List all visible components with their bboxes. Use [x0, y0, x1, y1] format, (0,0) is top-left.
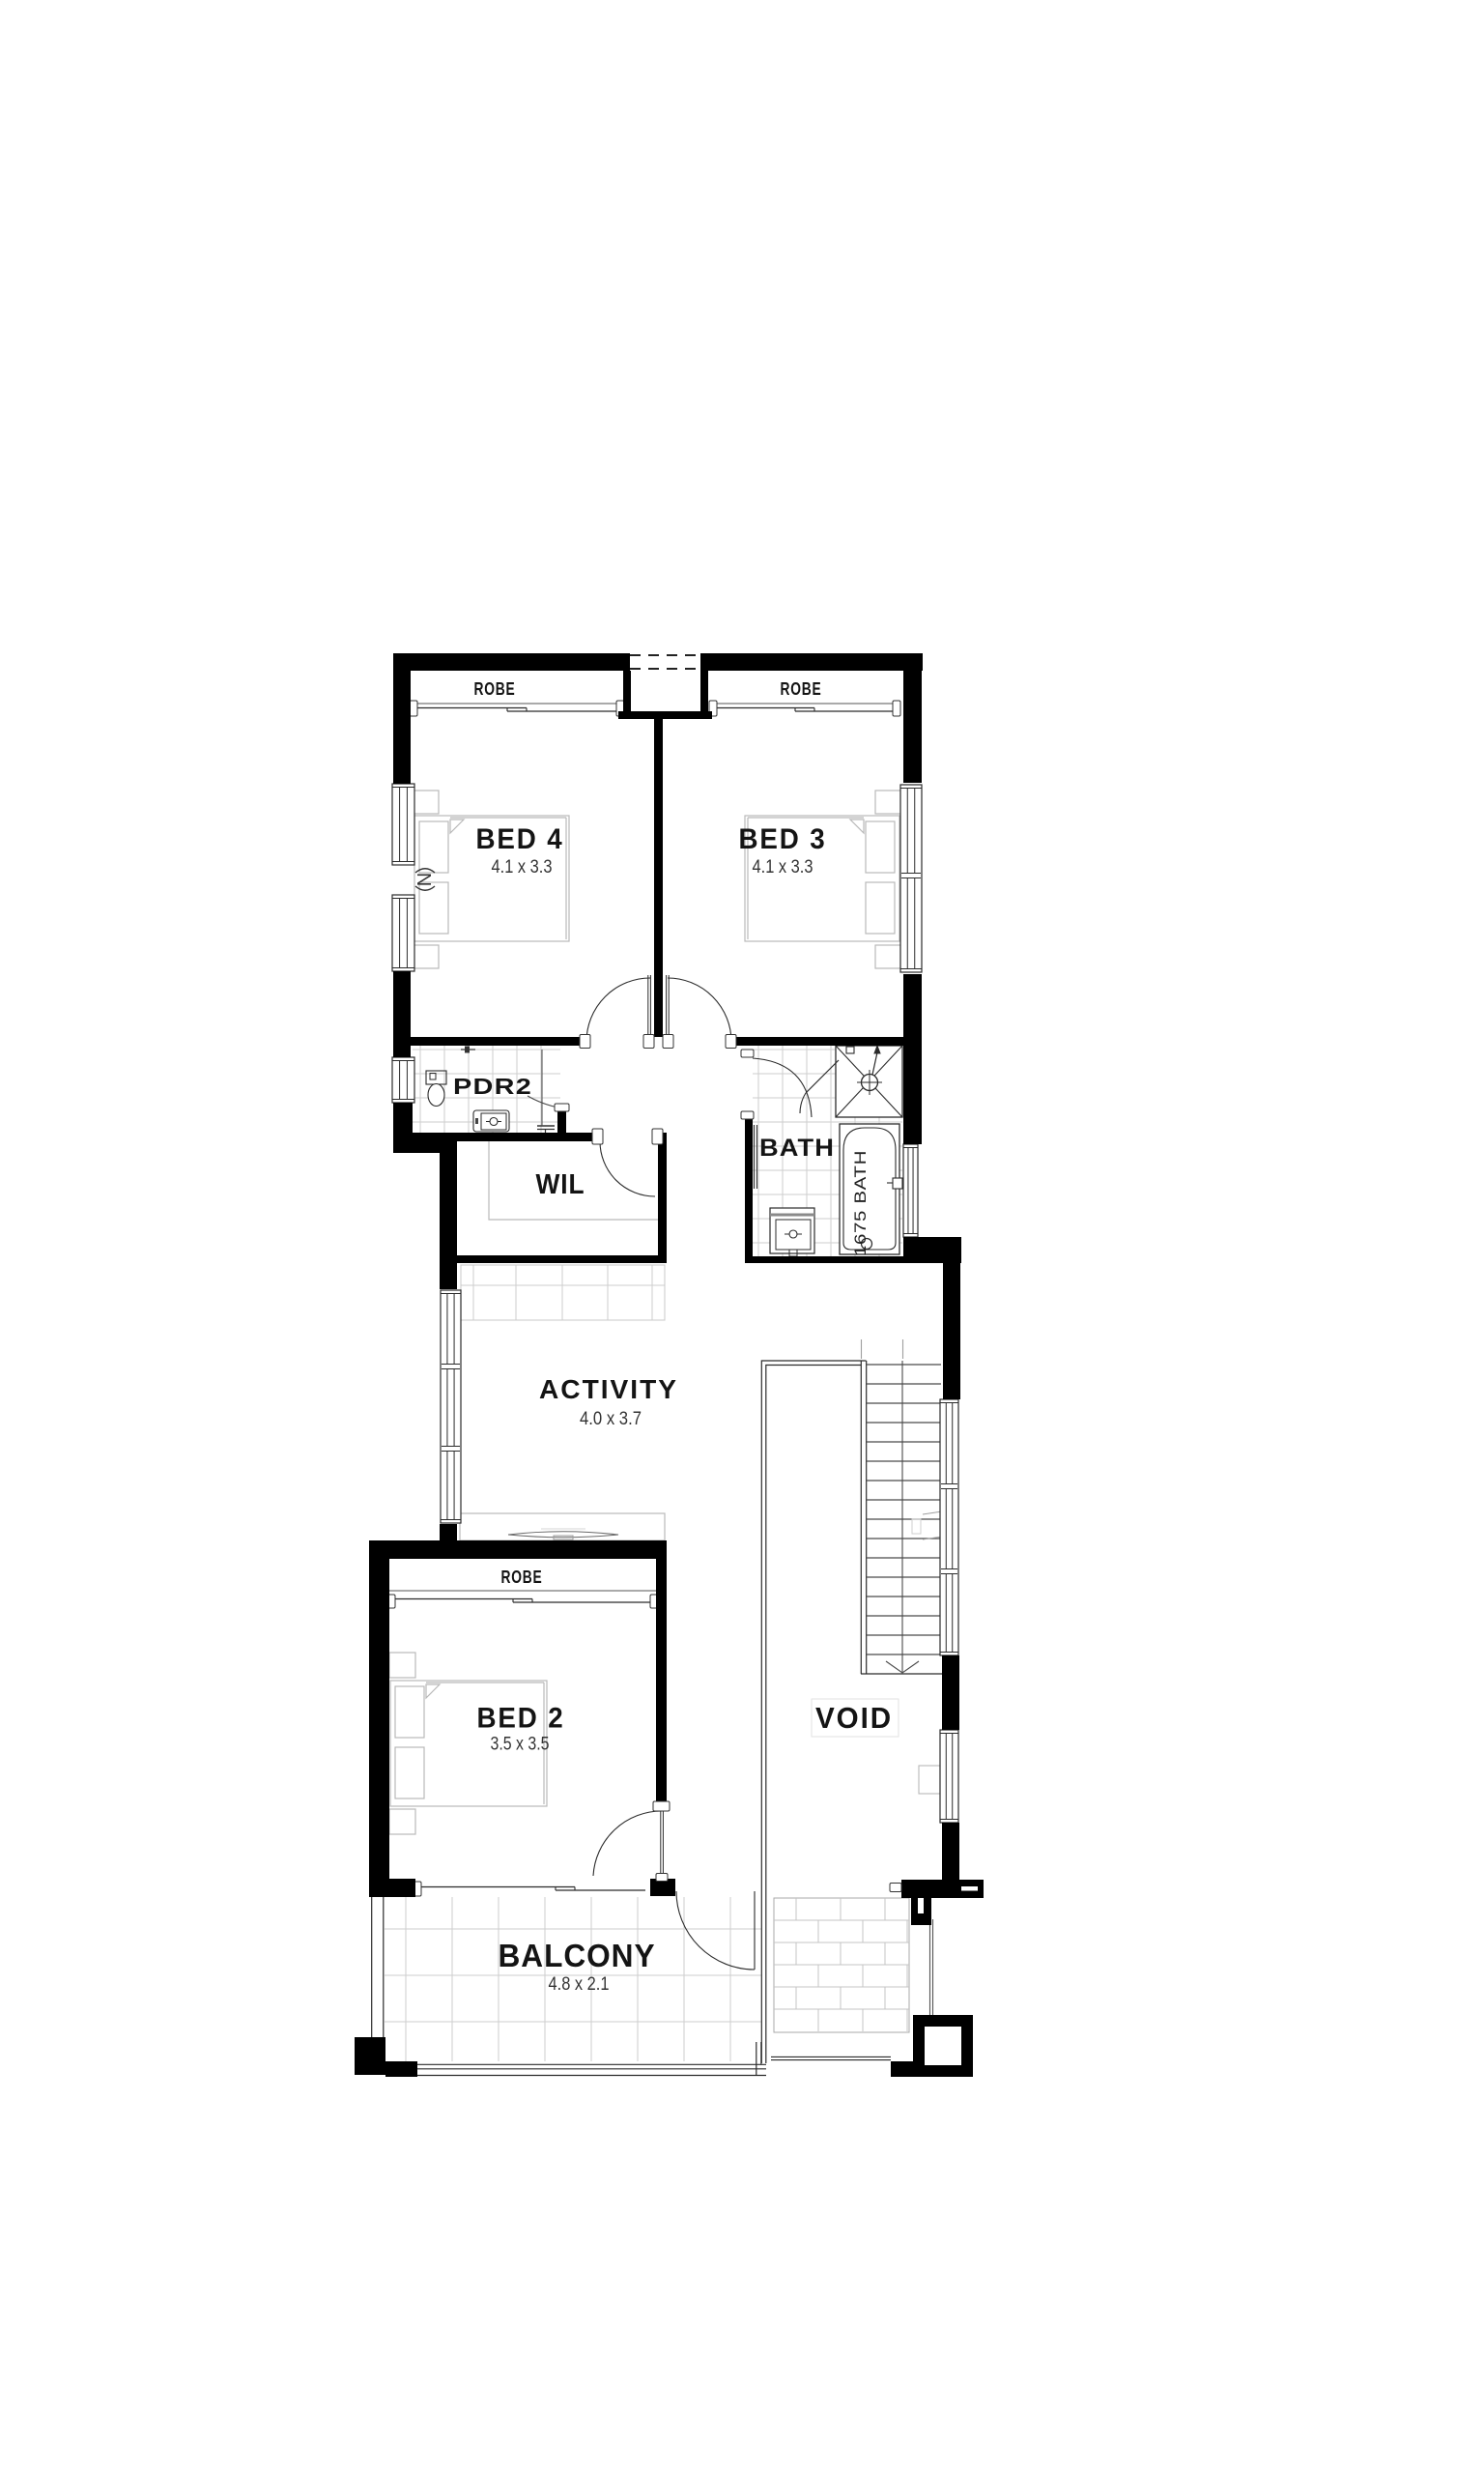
svg-text:N: N	[414, 873, 436, 886]
svg-text:4.1 x 3.3: 4.1 x 3.3	[492, 857, 553, 877]
svg-text:ROBE: ROBE	[781, 679, 822, 699]
svg-text:BED 3: BED 3	[739, 823, 827, 855]
svg-text:4.1 x 3.3: 4.1 x 3.3	[753, 857, 813, 877]
svg-text:WIL: WIL	[536, 1169, 585, 1200]
svg-text:BED 4: BED 4	[476, 823, 564, 855]
svg-text:ACTIVITY: ACTIVITY	[539, 1374, 678, 1404]
svg-text:ROBE: ROBE	[474, 679, 516, 699]
svg-text:3.5 x 3.5: 3.5 x 3.5	[491, 1735, 550, 1755]
svg-text:ROBE: ROBE	[501, 1568, 543, 1587]
svg-text:BALCONY: BALCONY	[499, 1938, 656, 1973]
svg-text:BED 2: BED 2	[477, 1703, 565, 1735]
svg-text:4.8 x 2.1: 4.8 x 2.1	[549, 1974, 610, 1995]
svg-text:VOID: VOID	[815, 1701, 893, 1735]
svg-text:PDR2: PDR2	[453, 1074, 532, 1099]
svg-text:4.0 x 3.7: 4.0 x 3.7	[580, 1409, 642, 1429]
svg-text:BATH: BATH	[759, 1135, 835, 1162]
svg-text:1675 BATH: 1675 BATH	[851, 1150, 870, 1256]
